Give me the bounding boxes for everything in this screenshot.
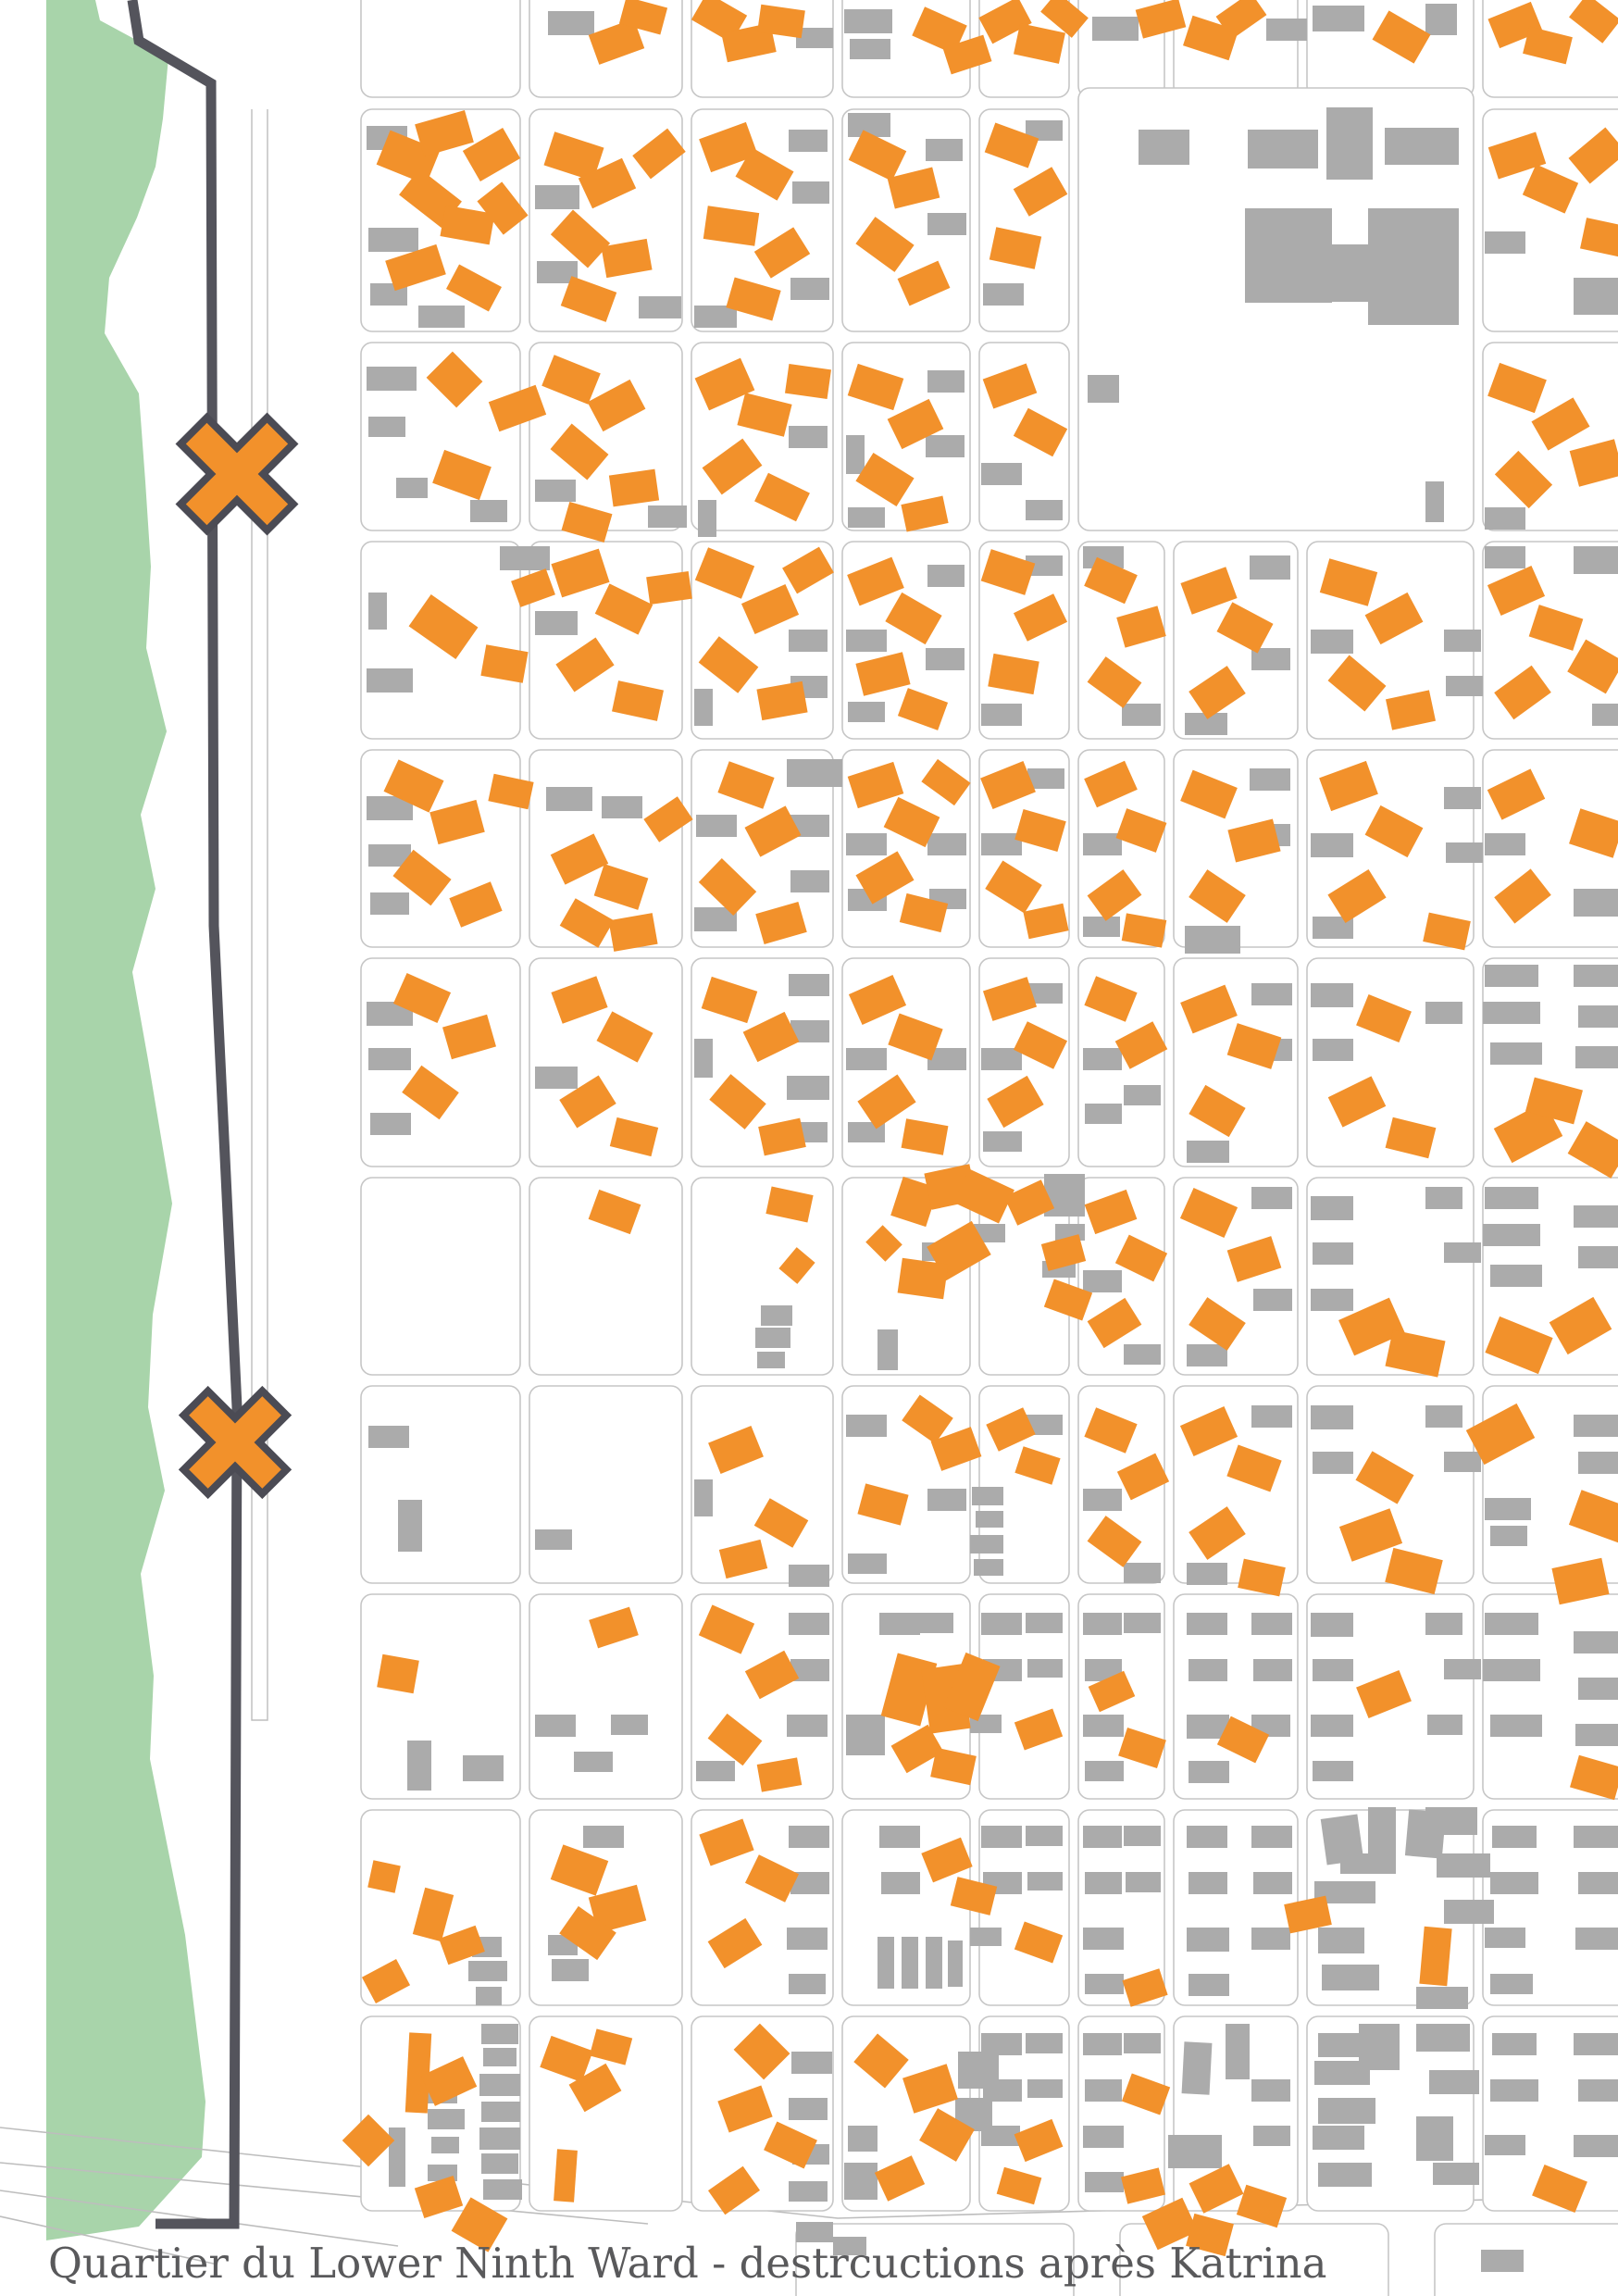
intact-building: [787, 1928, 828, 1950]
intact-building: [1311, 1715, 1353, 1737]
intact-building: [1313, 1761, 1353, 1781]
intact-building: [848, 1554, 887, 1574]
intact-building: [846, 1415, 887, 1437]
intact-building: [1124, 1085, 1161, 1105]
intact-building: [1340, 1853, 1396, 1874]
intact-building: [976, 1511, 1003, 1528]
intact-building: [1485, 2135, 1525, 2155]
intact-building: [398, 1500, 422, 1552]
intact-building: [546, 787, 592, 811]
intact-building: [948, 1940, 963, 1987]
intact-building: [792, 181, 829, 204]
intact-building: [790, 278, 829, 300]
intact-building: [1187, 1141, 1229, 1163]
intact-building: [1485, 1613, 1538, 1635]
intact-building: [1085, 2172, 1124, 2192]
intact-building: [1368, 208, 1459, 325]
intact-building: [791, 2052, 832, 2074]
map-caption: Quartier du Lower Ninth Ward - destrcuct…: [48, 2239, 1326, 2288]
katrina-destruction-map: Quartier du Lower Ninth Ward - destrcuct…: [0, 0, 1618, 2296]
intact-building: [1485, 833, 1525, 855]
intact-building: [1026, 500, 1063, 520]
intact-building: [1574, 2135, 1618, 2157]
intact-building: [370, 1113, 411, 1135]
intact-building: [1425, 1613, 1462, 1635]
intact-building: [1313, 1242, 1353, 1265]
intact-building: [479, 2074, 520, 2096]
intact-building: [983, 283, 1024, 306]
intact-building: [481, 2024, 518, 2044]
intact-building: [367, 668, 413, 693]
intact-building: [1490, 1042, 1542, 1065]
intact-building: [844, 2163, 877, 2200]
intact-building: [1483, 1659, 1540, 1681]
intact-building: [1248, 130, 1318, 168]
intact-building: [1083, 917, 1120, 937]
intact-building: [1187, 1928, 1229, 1952]
intact-building: [1083, 1928, 1124, 1950]
intact-building: [1483, 1002, 1540, 1024]
intact-building: [1444, 1900, 1494, 1924]
intact-building: [483, 2048, 517, 2066]
intact-building: [926, 1937, 942, 1989]
intact-building: [926, 139, 963, 161]
intact-building: [611, 1715, 648, 1735]
intact-building: [639, 296, 681, 318]
intact-building: [1122, 704, 1161, 726]
intact-building: [1485, 507, 1525, 530]
intact-building: [1416, 2024, 1470, 2052]
intact-building: [1578, 1678, 1618, 1700]
intact-building: [535, 1715, 576, 1737]
intact-building: [981, 2126, 1020, 2146]
intact-building: [1385, 128, 1459, 165]
intact-building: [1574, 889, 1618, 917]
intact-building: [789, 974, 829, 996]
intact-building: [1168, 2135, 1222, 2168]
intact-building: [1444, 630, 1481, 652]
intact-building: [1485, 1187, 1538, 1209]
intact-building: [1251, 2079, 1290, 2102]
intact-building: [470, 500, 507, 522]
intact-building: [879, 1613, 920, 1635]
destroyed-building: [377, 1654, 419, 1693]
intact-building: [1253, 1872, 1292, 1894]
intact-building: [481, 2102, 520, 2122]
intact-building: [1253, 2126, 1290, 2146]
intact-building: [1429, 2070, 1479, 2094]
intact-building: [1092, 17, 1139, 41]
intact-building: [1085, 1761, 1124, 1781]
intact-building: [850, 39, 890, 59]
intact-building: [1083, 2033, 1122, 2055]
intact-building: [1575, 1046, 1618, 1068]
intact-building: [1083, 1613, 1122, 1635]
intact-building: [696, 815, 737, 837]
city-block: [1435, 2224, 1618, 2296]
intact-building: [1245, 208, 1332, 303]
intact-building: [1251, 1928, 1290, 1950]
intact-building: [1124, 1344, 1161, 1365]
intact-building: [844, 9, 892, 33]
intact-building: [1425, 1002, 1462, 1024]
intact-building: [1083, 1489, 1122, 1511]
intact-building: [848, 2126, 877, 2152]
intact-building: [1425, 4, 1457, 35]
intact-building: [396, 478, 428, 498]
intact-building: [970, 1535, 1003, 1554]
intact-building: [1313, 1039, 1353, 1061]
intact-building: [789, 1613, 829, 1635]
intact-building: [846, 435, 865, 474]
intact-building: [1026, 1826, 1063, 1846]
intact-building: [1226, 2024, 1250, 2079]
destroyed-building: [609, 469, 659, 507]
intact-building: [1182, 2041, 1213, 2094]
intact-building: [1427, 1715, 1462, 1735]
intact-building: [1253, 1289, 1292, 1311]
intact-building: [1444, 1452, 1481, 1472]
intact-building: [1313, 2126, 1364, 2150]
intact-building: [983, 2079, 1022, 2102]
intact-building: [1083, 833, 1122, 855]
intact-building: [787, 759, 842, 787]
intact-building: [881, 1872, 920, 1894]
intact-building: [981, 2033, 1022, 2055]
intact-building: [1331, 244, 1370, 302]
intact-building: [970, 1928, 1002, 1946]
intact-building: [846, 1048, 887, 1070]
intact-building: [407, 1741, 431, 1791]
intact-building: [1574, 278, 1618, 315]
intact-building: [1187, 1563, 1227, 1585]
intact-building: [1251, 1405, 1292, 1428]
intact-building: [1444, 1242, 1481, 1263]
intact-building: [1490, 1872, 1538, 1894]
destroyed-building: [367, 1860, 401, 1893]
intact-building: [755, 1328, 790, 1348]
intact-building: [1311, 1196, 1353, 1220]
intact-building: [927, 833, 966, 855]
intact-building: [428, 2109, 465, 2129]
intact-building: [1433, 2163, 1479, 2185]
intact-building: [1318, 2098, 1375, 2124]
intact-building: [1124, 1613, 1161, 1633]
intact-building: [1444, 787, 1481, 809]
intact-building: [846, 833, 887, 855]
intact-building: [418, 306, 465, 328]
intact-building: [1126, 1872, 1161, 1892]
destroyed-building: [785, 364, 831, 399]
intact-building: [1124, 1826, 1161, 1846]
intact-building: [694, 689, 713, 726]
intact-building: [694, 306, 737, 328]
intact-building: [1574, 1205, 1618, 1228]
intact-building: [1027, 2079, 1063, 2098]
intact-building: [972, 1487, 1003, 1505]
intact-building: [1313, 6, 1364, 31]
intact-building: [1574, 2033, 1618, 2055]
map-canvas: [0, 0, 1618, 2296]
intact-building: [1027, 1872, 1063, 1890]
intact-building: [1085, 1872, 1122, 1894]
intact-building: [926, 648, 965, 670]
intact-building: [927, 370, 965, 393]
intact-building: [757, 1352, 785, 1368]
intact-building: [368, 593, 387, 630]
intact-building: [1575, 1928, 1618, 1950]
intact-building: [1313, 1452, 1353, 1474]
intact-building: [1266, 19, 1307, 41]
intact-building: [1574, 965, 1618, 987]
city-block: [361, 1178, 520, 1375]
intact-building: [1490, 1526, 1527, 1546]
intact-building: [1446, 676, 1483, 696]
intact-building: [389, 2128, 405, 2187]
intact-building: [789, 2098, 828, 2120]
intact-building: [789, 1974, 826, 1994]
intact-building: [483, 2179, 522, 2200]
intact-building: [1578, 1005, 1618, 1028]
intact-building: [1574, 1631, 1618, 1653]
intact-building: [1311, 833, 1353, 857]
intact-building: [1359, 2024, 1400, 2070]
intact-building: [535, 480, 576, 502]
destroyed-building: [1419, 1927, 1451, 1986]
intact-building: [981, 1048, 1022, 1070]
intact-building: [787, 1715, 828, 1737]
intact-building: [535, 611, 578, 635]
intact-building: [1311, 1613, 1353, 1637]
intact-building: [983, 1131, 1022, 1152]
intact-building: [648, 505, 687, 528]
intact-building: [1189, 1659, 1227, 1681]
intact-building: [927, 1489, 966, 1511]
intact-building: [1027, 1659, 1063, 1678]
intact-building: [1481, 2250, 1524, 2272]
intact-building: [696, 1761, 735, 1781]
intact-building: [846, 1715, 885, 1755]
intact-building: [368, 1426, 409, 1448]
intact-building: [1425, 1807, 1477, 1835]
intact-building: [1083, 1048, 1122, 1070]
intact-building: [1416, 2116, 1453, 2161]
intact-building: [1574, 1415, 1618, 1437]
intact-building: [468, 1961, 507, 1981]
intact-building: [974, 1559, 1003, 1576]
intact-building: [1251, 1187, 1292, 1209]
intact-building: [848, 507, 885, 528]
intact-building: [479, 2128, 520, 2150]
intact-building: [1425, 481, 1444, 522]
destroyed-building: [646, 571, 692, 605]
intact-building: [1446, 842, 1483, 863]
intact-building: [1088, 375, 1119, 403]
intact-building: [1251, 1826, 1292, 1848]
intact-building: [1083, 1270, 1122, 1292]
intact-building: [1492, 2033, 1537, 2055]
intact-building: [1483, 1224, 1540, 1246]
intact-building: [1251, 1613, 1292, 1635]
intact-building: [927, 213, 966, 235]
intact-building: [789, 1565, 829, 1587]
intact-building: [1026, 1613, 1063, 1633]
intact-building: [879, 1826, 920, 1848]
intact-building: [1311, 1289, 1353, 1311]
intact-building: [552, 1959, 589, 1981]
intact-building: [370, 892, 409, 915]
intact-building: [1083, 1826, 1122, 1848]
intact-building: [848, 702, 885, 722]
city-block: [361, 0, 520, 97]
intact-building: [981, 704, 1022, 726]
intact-building: [1490, 1715, 1542, 1737]
intact-building: [1485, 1928, 1525, 1948]
intact-building: [981, 463, 1022, 485]
intact-building: [535, 185, 579, 209]
intact-building: [1083, 1715, 1124, 1737]
intact-building: [535, 1067, 578, 1089]
intact-building: [916, 1613, 953, 1633]
intact-building: [1578, 2079, 1618, 2102]
intact-building: [1187, 1613, 1227, 1635]
intact-building: [1578, 1452, 1618, 1474]
intact-building: [1490, 1974, 1533, 1994]
intact-building: [1124, 2033, 1161, 2053]
city-block: [529, 1386, 682, 1583]
intact-building: [1318, 1928, 1364, 1953]
intact-building: [1368, 1807, 1396, 1859]
intact-building: [846, 630, 887, 652]
intact-building: [574, 1752, 613, 1772]
intact-building: [981, 1826, 1022, 1848]
intact-building: [1185, 926, 1240, 954]
intact-building: [481, 2153, 518, 2174]
intact-building: [1311, 1405, 1353, 1429]
intact-building: [463, 1755, 504, 1781]
intact-building: [1490, 2079, 1538, 2102]
intact-building: [535, 1529, 572, 1550]
intact-building: [694, 1479, 713, 1516]
intact-building: [1574, 1826, 1618, 1848]
intact-building: [1189, 1872, 1227, 1894]
intact-building: [877, 1329, 898, 1370]
intact-building: [368, 1048, 411, 1070]
intact-building: [1085, 1104, 1122, 1124]
intact-building: [698, 500, 716, 537]
intact-building: [368, 417, 405, 437]
intact-building: [1485, 231, 1525, 254]
intact-building: [787, 1076, 829, 1100]
intact-building: [1187, 1344, 1227, 1366]
intact-building: [1322, 1965, 1379, 1990]
intact-building: [1485, 965, 1538, 987]
city-block: [529, 958, 682, 1167]
intact-building: [1313, 1659, 1353, 1681]
intact-building: [602, 796, 642, 818]
intact-building: [1253, 1659, 1292, 1681]
intact-building: [1575, 1724, 1618, 1746]
intact-building: [1490, 1265, 1542, 1287]
intact-building: [476, 1987, 502, 2005]
intact-building: [1311, 630, 1353, 654]
intact-building: [1425, 1187, 1462, 1209]
destroyed-building: [554, 2149, 578, 2202]
intact-building: [1416, 1987, 1468, 2009]
intact-building: [1311, 983, 1353, 1007]
intact-building: [789, 426, 828, 448]
intact-building: [789, 630, 828, 652]
intact-building: [927, 565, 965, 587]
intact-building: [1485, 1498, 1531, 1520]
intact-building: [1083, 2126, 1124, 2148]
destroyed-building: [898, 1258, 949, 1300]
intact-building: [1251, 983, 1292, 1005]
intact-building: [1085, 2079, 1122, 2102]
intact-building: [761, 1305, 792, 1326]
intact-building: [1026, 2033, 1063, 2053]
intact-building: [790, 870, 829, 892]
intact-building: [1189, 1974, 1229, 1996]
intact-building: [1492, 1826, 1537, 1848]
city-block: [361, 1386, 520, 1583]
intact-building: [1437, 1853, 1490, 1878]
intact-building: [789, 2181, 828, 2202]
intact-building: [1592, 704, 1618, 726]
intact-building: [981, 1613, 1022, 1635]
intact-building: [877, 1937, 894, 1989]
intact-building: [368, 228, 418, 252]
intact-building: [1578, 1246, 1618, 1268]
intact-building: [431, 2137, 459, 2153]
intact-building: [789, 1826, 829, 1848]
intact-building: [367, 367, 417, 391]
intact-building: [1578, 1872, 1618, 1894]
intact-building: [789, 130, 828, 152]
intact-building: [1189, 1761, 1229, 1783]
intact-building: [1250, 768, 1290, 791]
intact-building: [926, 435, 965, 457]
intact-building: [1187, 1826, 1227, 1848]
intact-building: [1425, 1405, 1462, 1428]
intact-building: [583, 1826, 624, 1848]
intact-building: [1124, 1563, 1161, 1583]
intact-building: [902, 1937, 918, 1989]
intact-building: [1574, 546, 1618, 574]
intact-building: [1444, 1659, 1481, 1679]
intact-building: [694, 1039, 713, 1078]
intact-building: [1085, 1974, 1124, 1994]
intact-building: [1318, 2163, 1372, 2187]
intact-building: [500, 546, 550, 570]
intact-building: [1250, 555, 1290, 580]
intact-building: [1326, 107, 1373, 180]
intact-building: [548, 11, 594, 35]
intact-building: [1139, 130, 1189, 165]
intact-building: [1485, 546, 1525, 568]
